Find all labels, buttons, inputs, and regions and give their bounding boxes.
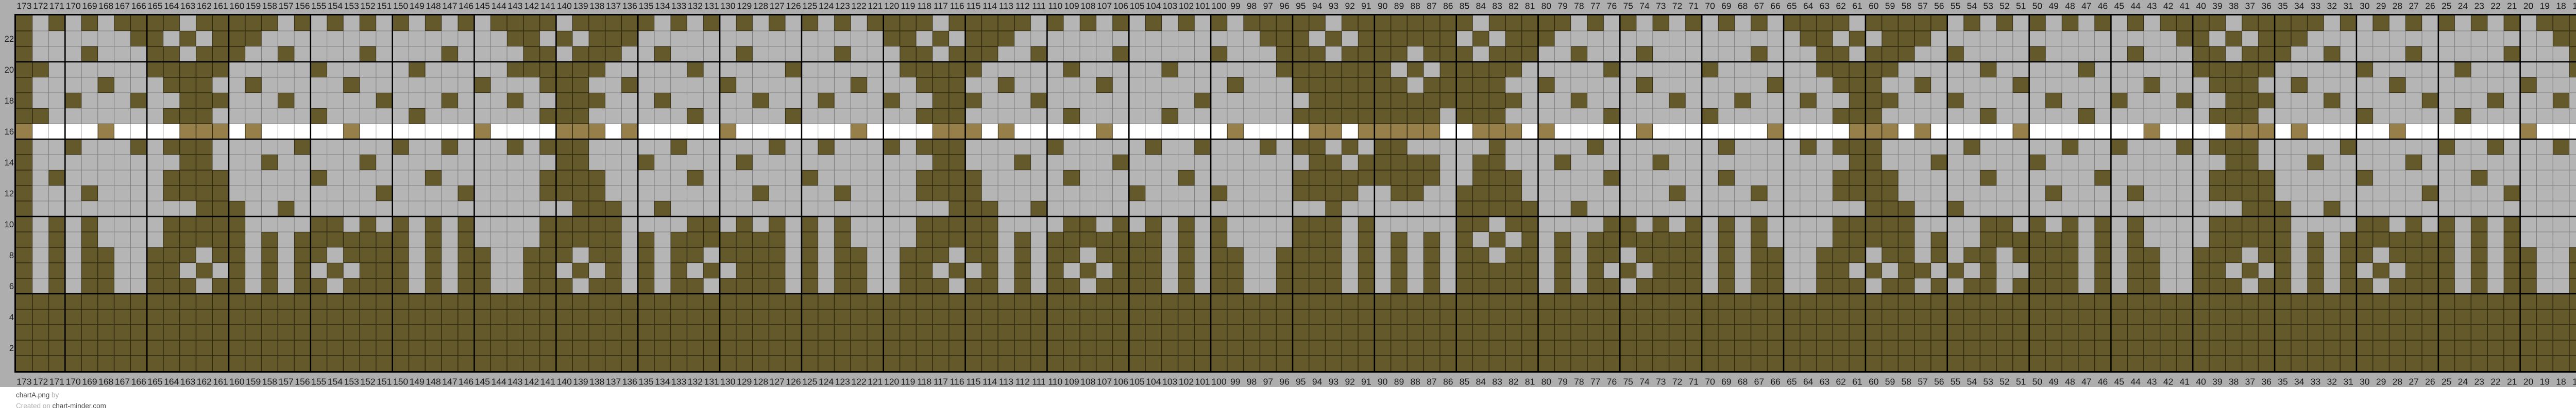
svg-text:162: 162 [197,1,212,11]
svg-text:136: 136 [622,377,637,387]
svg-text:35: 35 [2278,377,2287,387]
svg-text:14: 14 [5,158,14,167]
svg-text:163: 163 [180,1,195,11]
svg-text:4: 4 [9,313,14,322]
svg-text:47: 47 [2081,377,2091,387]
svg-text:137: 137 [606,1,621,11]
svg-text:160: 160 [229,377,244,387]
svg-text:93: 93 [1329,377,1338,387]
svg-text:77: 77 [1590,1,1600,11]
svg-text:91: 91 [1361,1,1371,11]
svg-text:168: 168 [98,377,113,387]
svg-text:138: 138 [589,377,604,387]
svg-text:39: 39 [2212,377,2222,387]
svg-text:33: 33 [2311,377,2320,387]
svg-text:150: 150 [393,1,408,11]
svg-text:106: 106 [1113,1,1128,11]
svg-text:172: 172 [33,377,48,387]
svg-text:40: 40 [2196,377,2206,387]
svg-text:57: 57 [1918,377,1927,387]
svg-text:41: 41 [2180,377,2190,387]
svg-text:79: 79 [1557,1,1567,11]
svg-text:61: 61 [1852,1,1862,11]
svg-text:163: 163 [180,377,195,387]
svg-text:90: 90 [1378,1,1388,11]
svg-text:111: 111 [1032,1,1046,11]
svg-text:136: 136 [622,1,637,11]
svg-text:51: 51 [2016,1,2026,11]
svg-text:152: 152 [360,377,375,387]
svg-text:54: 54 [1967,377,1977,387]
svg-text:161: 161 [213,1,228,11]
svg-text:44: 44 [2130,377,2141,387]
svg-text:151: 151 [377,377,392,387]
svg-text:119: 119 [901,1,915,11]
svg-text:59: 59 [1885,377,1895,387]
svg-text:164: 164 [164,377,179,387]
svg-text:127: 127 [770,377,785,387]
svg-text:27: 27 [2409,1,2418,11]
svg-text:38: 38 [2229,1,2239,11]
svg-text:162: 162 [197,377,212,387]
svg-text:62: 62 [1836,1,1845,11]
svg-text:148: 148 [426,1,440,11]
svg-text:152: 152 [360,1,375,11]
svg-text:39: 39 [2212,1,2222,11]
svg-text:168: 168 [98,1,113,11]
svg-text:31: 31 [2343,1,2353,11]
svg-text:169: 169 [82,377,97,387]
svg-text:134: 134 [655,1,670,11]
svg-text:107: 107 [1097,377,1112,387]
svg-text:62: 62 [1836,377,1845,387]
svg-text:70: 70 [1705,1,1715,11]
svg-text:21: 21 [2507,377,2517,387]
svg-text:142: 142 [524,1,539,11]
svg-text:66: 66 [1770,377,1780,387]
svg-text:137: 137 [606,377,621,387]
svg-text:135: 135 [638,1,653,11]
svg-text:63: 63 [1820,1,1829,11]
svg-text:50: 50 [2032,1,2043,11]
svg-text:111: 111 [1032,377,1046,387]
svg-text:97: 97 [1263,1,1273,11]
svg-text:57: 57 [1918,1,1927,11]
svg-text:52: 52 [1999,1,2009,11]
svg-text:38: 38 [2229,377,2239,387]
svg-text:28: 28 [2393,377,2402,387]
svg-text:98: 98 [1247,1,1257,11]
svg-text:132: 132 [688,377,703,387]
svg-text:79: 79 [1557,377,1567,387]
svg-text:167: 167 [115,377,130,387]
svg-text:60: 60 [1869,377,1879,387]
svg-text:41: 41 [2180,1,2190,11]
svg-text:129: 129 [737,1,752,11]
svg-text:165: 165 [147,377,162,387]
svg-text:131: 131 [704,1,719,11]
svg-text:23: 23 [2474,377,2484,387]
svg-text:67: 67 [1754,377,1764,387]
svg-text:118: 118 [917,1,931,11]
svg-text:126: 126 [786,377,801,387]
svg-text:125: 125 [802,1,817,11]
svg-text:75: 75 [1623,377,1633,387]
svg-text:140: 140 [557,377,572,387]
svg-text:123: 123 [835,1,850,11]
svg-text:43: 43 [2147,377,2157,387]
svg-text:35: 35 [2278,1,2287,11]
svg-text:65: 65 [1787,377,1797,387]
svg-text:36: 36 [2261,1,2271,11]
svg-text:132: 132 [688,1,703,11]
svg-text:53: 53 [1983,1,1993,11]
svg-text:153: 153 [344,377,359,387]
svg-text:115: 115 [967,377,981,387]
svg-text:42: 42 [2163,1,2173,11]
svg-text:99: 99 [1230,1,1240,11]
svg-text:158: 158 [262,377,277,387]
svg-text:122: 122 [851,377,866,387]
svg-text:32: 32 [2327,377,2337,387]
svg-text:73: 73 [1656,377,1666,387]
svg-text:114: 114 [982,377,997,387]
svg-text:94: 94 [1312,1,1323,11]
svg-text:134: 134 [655,377,670,387]
svg-text:130: 130 [720,377,735,387]
svg-text:124: 124 [819,1,834,11]
svg-text:88: 88 [1410,1,1420,11]
svg-text:131: 131 [704,377,719,387]
svg-text:124: 124 [819,377,834,387]
svg-text:154: 154 [328,1,343,11]
svg-text:52: 52 [1999,377,2009,387]
svg-text:51: 51 [2016,377,2026,387]
svg-text:31: 31 [2343,377,2353,387]
svg-text:117: 117 [934,377,948,387]
svg-text:133: 133 [671,1,686,11]
svg-text:108: 108 [1080,1,1095,11]
svg-text:48: 48 [2065,1,2075,11]
svg-text:158: 158 [262,1,277,11]
svg-text:72: 72 [1672,1,1682,11]
svg-text:105: 105 [1130,1,1145,11]
svg-text:18: 18 [2556,377,2566,387]
svg-text:73: 73 [1656,1,1666,11]
svg-text:22: 22 [2490,377,2500,387]
svg-text:113: 113 [999,377,1013,387]
svg-text:49: 49 [2048,1,2058,11]
svg-text:121: 121 [868,1,883,11]
svg-text:161: 161 [213,377,228,387]
svg-text:80: 80 [1541,1,1552,11]
svg-text:44: 44 [2130,1,2141,11]
svg-text:12: 12 [5,189,14,198]
svg-text:82: 82 [1509,377,1518,387]
svg-text:74: 74 [1639,1,1650,11]
svg-text:95: 95 [1296,1,1306,11]
svg-text:101: 101 [1195,1,1210,11]
svg-text:71: 71 [1689,377,1699,387]
svg-text:125: 125 [802,377,817,387]
svg-text:112: 112 [1015,1,1030,11]
svg-text:105: 105 [1130,377,1145,387]
svg-text:42: 42 [2163,377,2173,387]
svg-text:28: 28 [2393,1,2402,11]
svg-text:138: 138 [589,1,604,11]
svg-text:155: 155 [311,1,326,11]
svg-text:173: 173 [16,377,31,387]
svg-text:19: 19 [2540,377,2550,387]
svg-text:26: 26 [2425,377,2435,387]
svg-text:83: 83 [1492,1,1502,11]
svg-text:164: 164 [164,1,179,11]
svg-text:128: 128 [753,377,768,387]
svg-text:172: 172 [33,1,48,11]
svg-text:78: 78 [1574,1,1584,11]
svg-text:83: 83 [1492,377,1502,387]
svg-text:75: 75 [1623,1,1633,11]
svg-text:117: 117 [934,1,948,11]
svg-text:20: 20 [2523,1,2534,11]
svg-text:87: 87 [1427,1,1436,11]
svg-text:173: 173 [16,1,31,11]
svg-text:129: 129 [737,377,752,387]
svg-text:74: 74 [1639,377,1650,387]
svg-text:85: 85 [1460,1,1469,11]
svg-text:8: 8 [9,251,14,260]
svg-text:126: 126 [786,1,801,11]
svg-text:127: 127 [770,1,785,11]
svg-text:50: 50 [2032,377,2043,387]
svg-text:87: 87 [1427,377,1436,387]
svg-text:143: 143 [507,1,522,11]
svg-text:84: 84 [1476,377,1486,387]
svg-text:24: 24 [2458,1,2468,11]
svg-text:78: 78 [1574,377,1584,387]
svg-text:76: 76 [1607,377,1617,387]
svg-text:18: 18 [2556,1,2566,11]
svg-text:68: 68 [1738,377,1748,387]
svg-text:114: 114 [982,1,997,11]
svg-text:151: 151 [377,1,392,11]
svg-text:24: 24 [2458,377,2468,387]
svg-text:32: 32 [2327,1,2337,11]
svg-text:100: 100 [1211,377,1226,387]
svg-text:94: 94 [1312,377,1323,387]
svg-text:165: 165 [147,1,162,11]
svg-text:144: 144 [492,1,506,11]
svg-text:156: 156 [295,1,310,11]
svg-text:157: 157 [279,1,294,11]
svg-text:20: 20 [2523,377,2534,387]
svg-text:160: 160 [229,1,244,11]
svg-text:116: 116 [950,377,964,387]
svg-text:77: 77 [1590,377,1600,387]
svg-text:104: 104 [1146,377,1161,387]
svg-text:27: 27 [2409,377,2418,387]
svg-text:30: 30 [2360,1,2370,11]
svg-text:29: 29 [2376,377,2386,387]
svg-text:150: 150 [393,377,408,387]
svg-text:148: 148 [426,377,440,387]
svg-text:167: 167 [115,1,130,11]
svg-text:61: 61 [1852,377,1862,387]
svg-text:130: 130 [720,1,735,11]
svg-text:118: 118 [917,377,931,387]
svg-text:33: 33 [2311,1,2320,11]
svg-text:166: 166 [131,377,146,387]
svg-text:56: 56 [1934,377,1944,387]
svg-text:109: 109 [1064,1,1079,11]
svg-text:120: 120 [884,377,899,387]
svg-text:45: 45 [2114,1,2124,11]
svg-text:65: 65 [1787,1,1797,11]
svg-text:43: 43 [2147,1,2157,11]
svg-text:36: 36 [2261,377,2271,387]
svg-text:147: 147 [442,377,457,387]
svg-text:106: 106 [1113,377,1128,387]
svg-text:90: 90 [1378,377,1388,387]
svg-text:139: 139 [573,1,588,11]
svg-text:170: 170 [66,377,81,387]
svg-text:103: 103 [1162,1,1177,11]
svg-text:40: 40 [2196,1,2206,11]
svg-text:121: 121 [868,377,883,387]
svg-text:25: 25 [2442,377,2451,387]
svg-text:72: 72 [1672,377,1682,387]
svg-text:93: 93 [1329,1,1338,11]
svg-text:116: 116 [950,1,964,11]
svg-text:20: 20 [5,65,14,75]
svg-text:55: 55 [1951,1,1960,11]
svg-text:Created on chart-minder.com: Created on chart-minder.com [16,402,106,410]
svg-text:34: 34 [2294,1,2304,11]
svg-text:97: 97 [1263,377,1273,387]
svg-text:23: 23 [2474,1,2484,11]
svg-text:159: 159 [246,377,261,387]
svg-text:16: 16 [5,127,14,137]
svg-text:37: 37 [2245,377,2255,387]
svg-text:145: 145 [475,377,490,387]
svg-text:69: 69 [1721,377,1731,387]
svg-text:64: 64 [1803,377,1814,387]
svg-text:2: 2 [9,344,14,353]
svg-text:48: 48 [2065,377,2075,387]
svg-text:171: 171 [49,377,64,387]
svg-text:120: 120 [884,1,899,11]
svg-text:45: 45 [2114,377,2124,387]
svg-text:141: 141 [540,377,555,387]
svg-text:84: 84 [1476,1,1486,11]
svg-text:63: 63 [1820,377,1829,387]
svg-text:128: 128 [753,1,768,11]
svg-text:145: 145 [475,1,490,11]
svg-text:26: 26 [2425,1,2435,11]
svg-text:140: 140 [557,1,572,11]
svg-text:46: 46 [2098,377,2108,387]
svg-text:66: 66 [1770,1,1780,11]
svg-text:92: 92 [1345,377,1354,387]
svg-text:122: 122 [851,1,866,11]
svg-text:149: 149 [410,377,425,387]
svg-text:60: 60 [1869,1,1879,11]
svg-text:100: 100 [1211,1,1226,11]
svg-text:99: 99 [1230,377,1240,387]
svg-text:34: 34 [2294,377,2304,387]
svg-text:88: 88 [1410,377,1420,387]
svg-text:159: 159 [246,1,261,11]
svg-text:82: 82 [1509,1,1518,11]
svg-text:17: 17 [2572,1,2576,11]
svg-text:6: 6 [9,282,14,291]
svg-text:154: 154 [328,377,343,387]
svg-text:85: 85 [1460,377,1469,387]
svg-text:56: 56 [1934,1,1944,11]
svg-text:81: 81 [1525,1,1535,11]
svg-text:67: 67 [1754,1,1764,11]
svg-text:47: 47 [2081,1,2091,11]
svg-text:29: 29 [2376,1,2386,11]
svg-text:69: 69 [1721,1,1731,11]
svg-text:76: 76 [1607,1,1617,11]
svg-text:98: 98 [1247,377,1257,387]
svg-text:155: 155 [311,377,326,387]
svg-text:109: 109 [1064,377,1079,387]
svg-text:46: 46 [2098,1,2108,11]
svg-text:86: 86 [1443,377,1453,387]
svg-text:110: 110 [1048,377,1062,387]
svg-text:141: 141 [540,1,555,11]
svg-text:107: 107 [1097,1,1112,11]
svg-text:103: 103 [1162,377,1177,387]
svg-text:55: 55 [1951,377,1960,387]
svg-text:70: 70 [1705,377,1715,387]
svg-text:119: 119 [901,377,915,387]
svg-text:170: 170 [66,1,81,11]
svg-text:10: 10 [5,220,14,229]
svg-text:68: 68 [1738,1,1748,11]
svg-text:144: 144 [492,377,506,387]
svg-text:37: 37 [2245,1,2255,11]
svg-text:25: 25 [2442,1,2451,11]
svg-text:18: 18 [5,96,14,106]
svg-text:115: 115 [967,1,981,11]
svg-text:89: 89 [1394,377,1404,387]
svg-text:30: 30 [2360,377,2370,387]
svg-text:156: 156 [295,377,310,387]
svg-text:123: 123 [835,377,850,387]
svg-text:58: 58 [1902,377,1911,387]
svg-text:112: 112 [1015,377,1030,387]
svg-text:95: 95 [1296,377,1306,387]
svg-text:89: 89 [1394,1,1404,11]
svg-text:133: 133 [671,377,686,387]
svg-text:169: 169 [82,1,97,11]
svg-text:64: 64 [1803,1,1814,11]
svg-text:59: 59 [1885,1,1895,11]
svg-text:149: 149 [410,1,425,11]
svg-text:166: 166 [131,1,146,11]
svg-text:17: 17 [2572,377,2576,387]
svg-text:49: 49 [2048,377,2058,387]
svg-text:101: 101 [1195,377,1210,387]
svg-text:146: 146 [459,1,473,11]
svg-text:22: 22 [5,35,14,44]
svg-text:71: 71 [1689,1,1699,11]
svg-text:113: 113 [999,1,1013,11]
svg-text:81: 81 [1525,377,1535,387]
